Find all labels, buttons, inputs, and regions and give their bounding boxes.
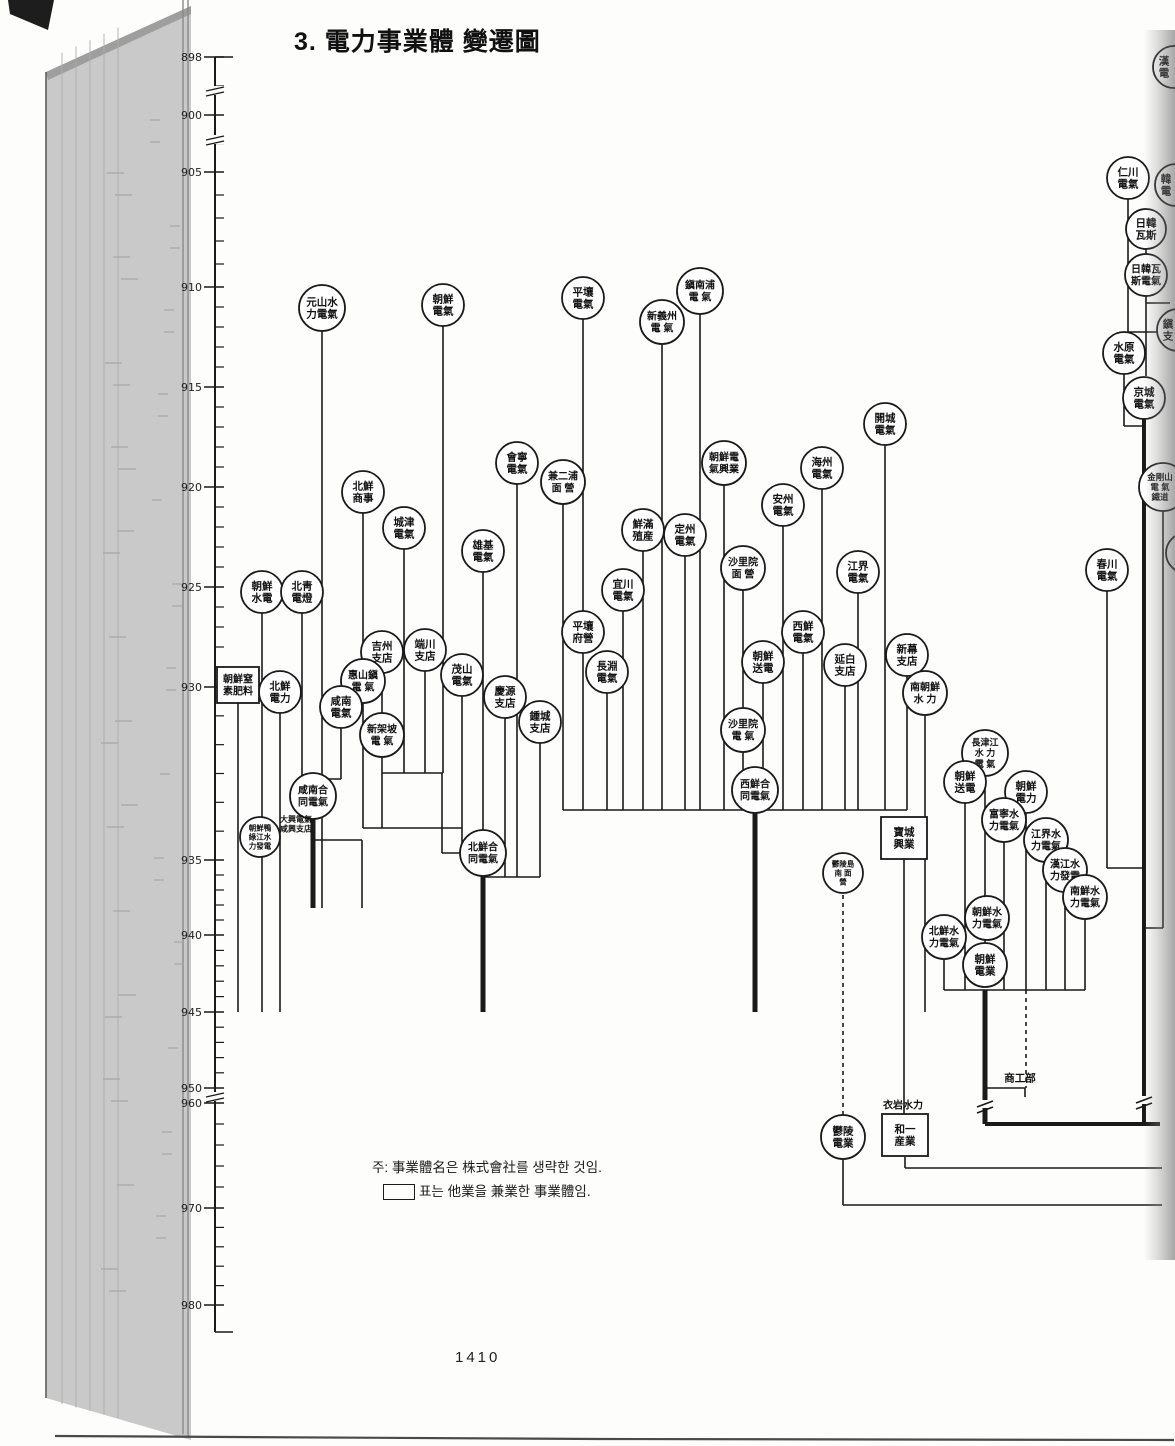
node-label-singapa-electric: 新架坡電 氣 — [367, 723, 398, 748]
node-label-pukchong-electric-lamp: 北靑電燈 — [292, 580, 313, 605]
axis-year-label: 930 — [181, 681, 202, 694]
axis-year-label: 898 — [181, 51, 202, 64]
legend-line1: 주: 事業體名은 株式會社를 생략한 것임. — [372, 1156, 602, 1180]
axis-year-label: 925 — [181, 581, 202, 594]
node-label-choson-electric-power: 朝鮮電力 — [1016, 780, 1038, 805]
axis-year-label: 960 — [181, 1097, 202, 1110]
book-page: 8989009059109159209259309359409459509609… — [0, 0, 1175, 1446]
node-label-ulleung-electric-business: 鬱陵電業 — [833, 1125, 854, 1150]
node-label-chongsong-branch: 鍾城支店 — [529, 710, 551, 735]
node-label-pyongyang-municipal: 平壤府營 — [573, 620, 594, 645]
node-label-hamnam-joint-electric: 咸南合同電氣 — [298, 784, 329, 809]
axis-year-label: 950 — [181, 1082, 202, 1095]
node-label-posung-hungop: 寶城興業 — [894, 826, 915, 851]
axis-year-label: 910 — [181, 281, 202, 294]
node-label-choson-hydro-electric: 朝鮮水力電氣 — [972, 906, 1003, 931]
label-ministry-commerce-industry: 商工部 — [1004, 1072, 1036, 1085]
node-label-namchoson-hydro: 南朝鮮水 力 — [910, 681, 940, 706]
node-label-wonsan-hydro-electric: 元山水力電氣 — [306, 296, 338, 321]
node-label-sinuiju-electric: 新義州電 氣 — [647, 310, 677, 335]
page-number: 1410 — [455, 1349, 500, 1366]
node-label-chunchon-electric: 春川電氣 — [1097, 558, 1119, 583]
label-taehung-electric-hamhung-branch: 大興電氣咸興支店 — [280, 814, 312, 834]
node-label-choson-electric: 朝鮮電氣 — [433, 293, 454, 318]
legend-box-icon — [383, 1184, 415, 1200]
node-label-incheon-electric: 仁川電氣 — [1118, 166, 1140, 191]
node-label-choson-soden-east: 朝鮮送電 — [954, 770, 976, 795]
axis-year-label: 970 — [181, 1202, 202, 1215]
node-label-yonbaek-branch: 延白支店 — [834, 653, 856, 678]
node-label-sinmak-branch: 新幕支店 — [896, 643, 918, 668]
node-label-uichon-electric: 宜川電氣 — [613, 578, 634, 603]
node-label-musan-electric: 茂山電氣 — [451, 663, 473, 688]
node-label-kyomipo-municipal: 兼二浦面 營 — [548, 470, 578, 495]
axis-year-label: 980 — [181, 1299, 202, 1312]
node-label-choson-electric-business: 朝鮮電業 — [975, 953, 996, 978]
node-label-kaesong-electric: 開城電氣 — [875, 412, 896, 437]
node-label-pyongyang-electric: 平壤電氣 — [573, 286, 594, 311]
node-label-haeju-electric: 海州電氣 — [812, 456, 833, 481]
node-label-suwon-electric: 水原電氣 — [1113, 341, 1136, 366]
axis-year-label: 920 — [181, 481, 202, 494]
node-label-kanggye-electric: 江界電氣 — [848, 560, 869, 585]
node-label-choson-nitrogen-fertilizer: 朝鮮窒素肥料 — [223, 673, 253, 698]
node-label-sosun-joint-electric: 西鮮合同電氣 — [740, 778, 771, 803]
axis-year-label: 935 — [181, 854, 202, 867]
page-curl-shadow — [1144, 30, 1175, 1260]
node-label-namsun-hydro-electric: 南鮮水力電氣 — [1070, 885, 1101, 910]
node-label-hamnam-electric: 咸南電氣 — [331, 695, 352, 720]
node-label-chongju-electric: 定州電氣 — [674, 523, 696, 548]
node-label-puksun-trading: 北鮮商事 — [353, 480, 374, 505]
node-label-changyon-electric: 長淵電氣 — [597, 660, 618, 685]
page-title: 3. 電力事業體 變遷圖 — [294, 22, 541, 58]
node-label-sariwon-electric: 沙里院電 氣 — [728, 718, 758, 743]
node-label-puksun-joint-electric: 北鮮合同電氣 — [468, 841, 499, 866]
node-label-puksun-electric-power: 北鮮電力 — [270, 680, 291, 705]
transition-diagram: 8989009059109159209259309359409459509609… — [0, 0, 1175, 1446]
legend-line2: 표는 他業을 兼業한 事業體임. — [372, 1180, 602, 1204]
axis-year-label: 900 — [181, 109, 202, 122]
node-label-sunman-industry: 鮮滿殖産 — [632, 518, 654, 543]
legend-note: 주: 事業體名은 株式會社를 생략한 것임. 표는 他業을 兼業한 事業體임. — [372, 1156, 602, 1204]
node-label-choson-electric-promotion: 朝鮮電氣興業 — [709, 451, 740, 476]
book-edge-band — [46, 6, 191, 1440]
node-label-chinnampo-electric: 鎭南浦電 氣 — [685, 279, 715, 304]
axis-year-label: 940 — [181, 929, 202, 942]
node-label-tanchon-branch: 端川支店 — [414, 638, 436, 663]
node-label-kyongwon-branch: 慶源支店 — [494, 685, 516, 710]
axis-year-label: 915 — [181, 381, 202, 394]
axis-year-label: 905 — [181, 166, 202, 179]
axis-year-label: 945 — [181, 1006, 202, 1019]
node-label-sariwon-municipal: 沙里院面 營 — [728, 556, 758, 581]
node-label-choson-soden-west: 朝鮮送電 — [752, 650, 774, 675]
node-label-ungki-electric: 雄基電氣 — [472, 539, 494, 564]
node-label-songjin-electric: 城津電氣 — [394, 516, 415, 541]
node-label-puksun-hydro-electric: 北鮮水力電氣 — [929, 925, 960, 950]
node-label-punyong-hydro-electric: 富寧水力電氣 — [989, 808, 1020, 833]
label-uiam-hydro: 衣岩水力 — [883, 1099, 923, 1112]
node-label-choson-yalu-hydro: 朝鮮鴨綠江水力發電 — [249, 823, 272, 851]
node-label-anju-electric: 安州電氣 — [773, 493, 794, 518]
node-label-hwail-sanop: 和一産業 — [894, 1123, 916, 1148]
node-label-hoeryong-electric: 會寧電氣 — [506, 451, 528, 476]
node-label-choson-suden: 朝鮮水電 — [251, 580, 273, 605]
legend-line2-text: 표는 他業을 兼業한 事業體임. — [419, 1180, 591, 1204]
node-label-sosun-electric: 西鮮電氣 — [793, 620, 814, 645]
